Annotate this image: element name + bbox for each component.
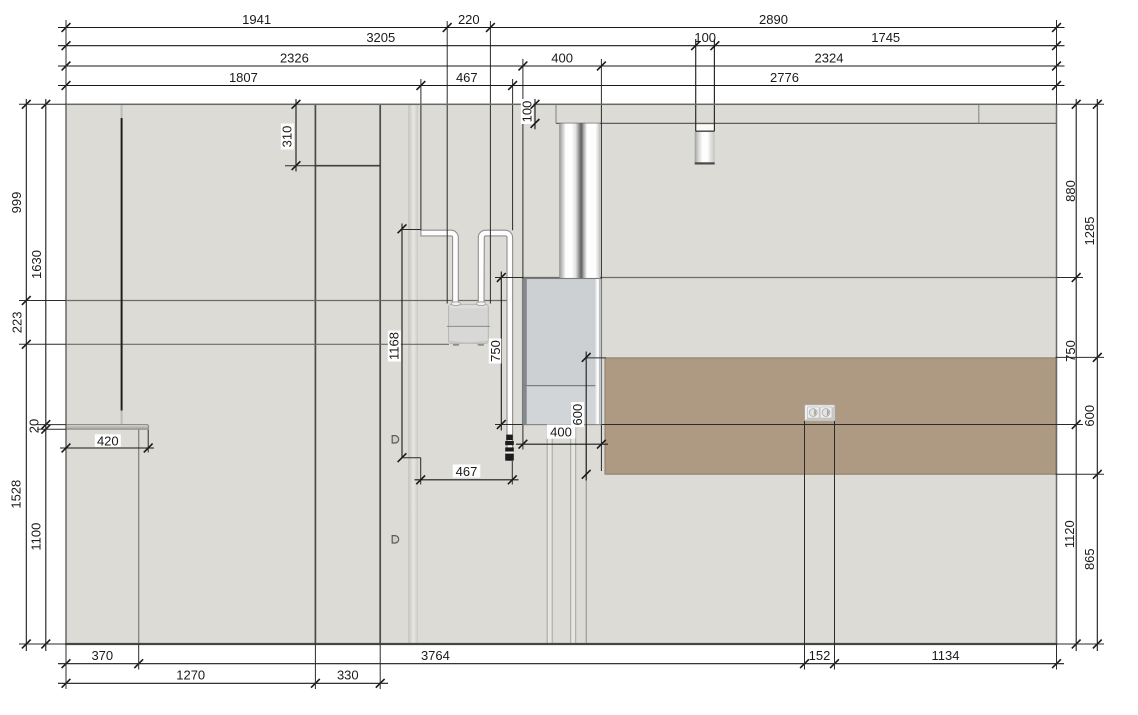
svg-text:600: 600 [570,404,585,426]
svg-text:1807: 1807 [229,70,258,85]
svg-text:400: 400 [551,50,573,65]
svg-text:1285: 1285 [1082,217,1097,246]
svg-text:220: 220 [458,12,480,27]
svg-text:20: 20 [26,419,41,433]
svg-text:330: 330 [337,668,359,683]
svg-text:467: 467 [456,464,478,479]
svg-text:223: 223 [9,312,24,334]
svg-text:2890: 2890 [759,12,788,27]
svg-text:2776: 2776 [770,70,799,85]
svg-text:400: 400 [550,424,572,439]
svg-text:865: 865 [1082,548,1097,570]
svg-text:3764: 3764 [421,648,450,663]
svg-text:1528: 1528 [8,480,23,509]
svg-text:750: 750 [1063,340,1078,362]
svg-text:2324: 2324 [815,50,844,65]
svg-text:1941: 1941 [242,12,271,27]
svg-text:1745: 1745 [871,30,900,45]
svg-text:2326: 2326 [280,50,309,65]
svg-text:310: 310 [280,126,295,148]
svg-text:467: 467 [456,70,478,85]
svg-text:1168: 1168 [387,332,402,360]
svg-text:100: 100 [694,30,716,45]
svg-text:152: 152 [809,648,831,663]
svg-text:880: 880 [1063,180,1078,202]
svg-text:750: 750 [488,340,503,362]
svg-text:420: 420 [97,433,119,448]
svg-text:999: 999 [9,192,24,214]
svg-text:100: 100 [519,101,534,123]
svg-text:600: 600 [1082,405,1097,427]
svg-text:1100: 1100 [29,523,44,551]
svg-text:3205: 3205 [366,30,395,45]
svg-text:370: 370 [91,648,113,663]
svg-text:1120: 1120 [1062,520,1077,548]
svg-text:1270: 1270 [176,668,205,683]
svg-text:1134: 1134 [932,648,960,663]
svg-text:1630: 1630 [29,250,44,279]
